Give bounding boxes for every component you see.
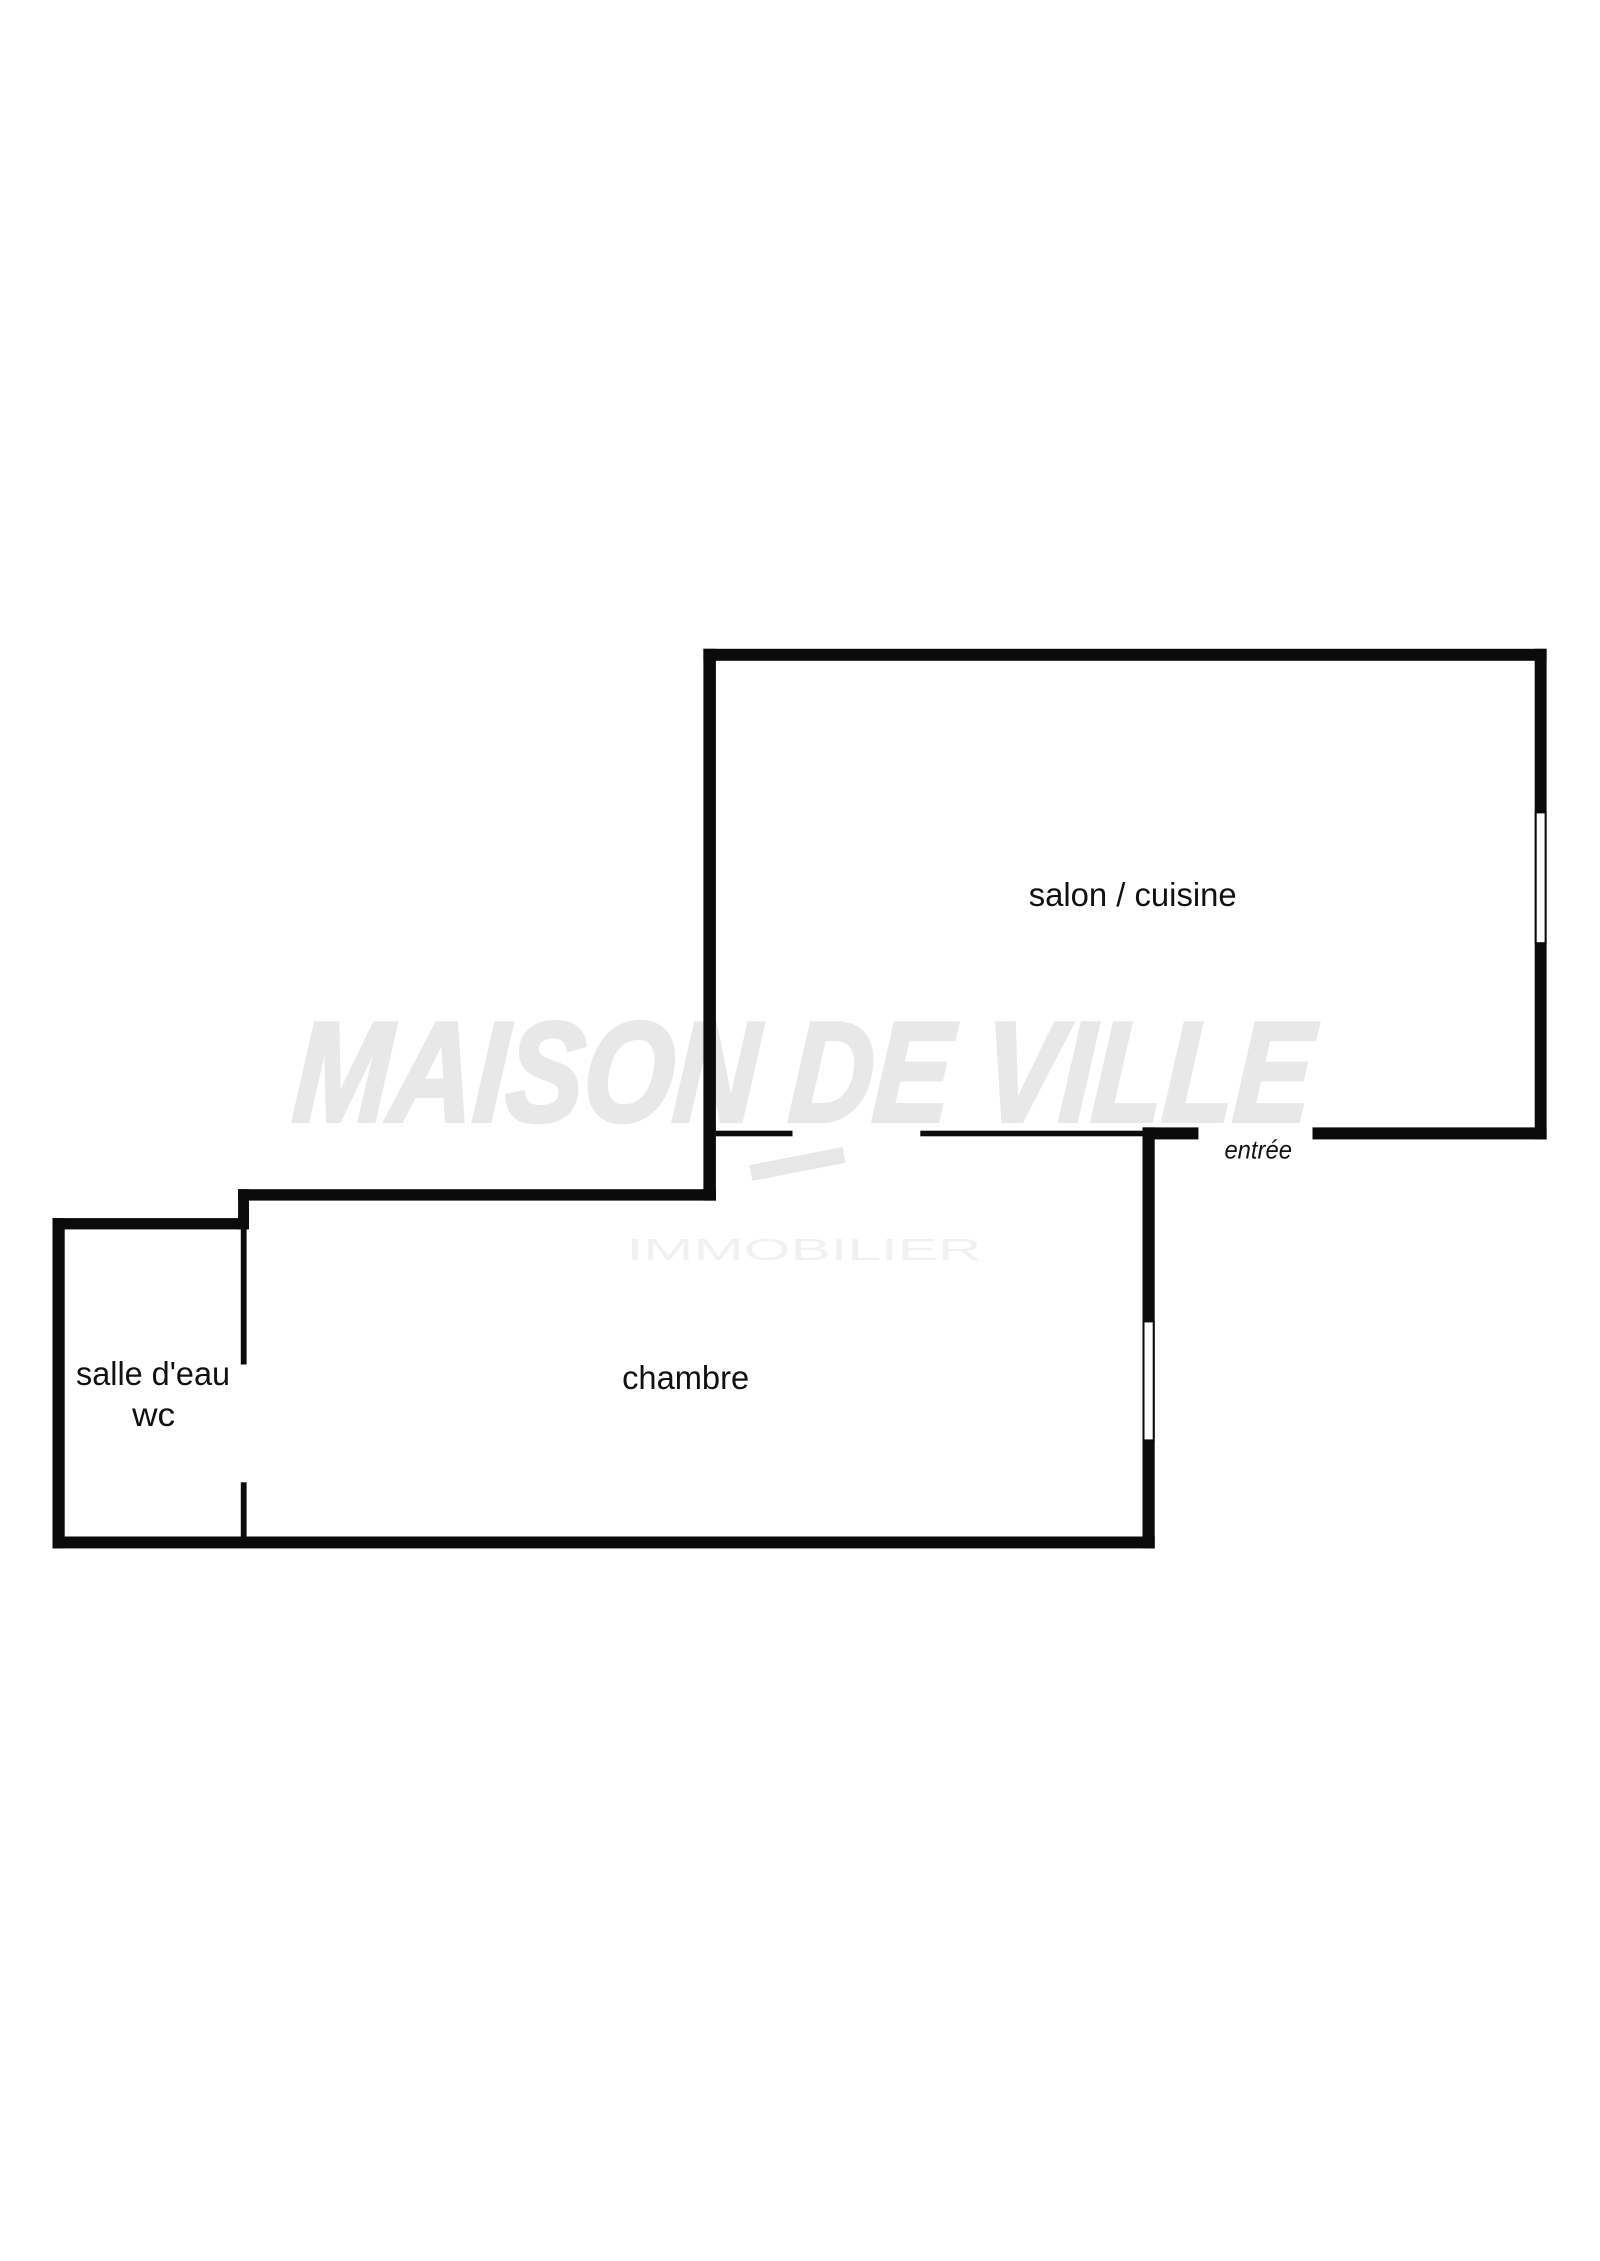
svg-text:IMMOBILIER: IMMOBILIER (627, 1232, 982, 1267)
svg-text:salle d'eau: salle d'eau (76, 1355, 230, 1392)
svg-text:wc: wc (131, 1396, 175, 1433)
svg-text:entrée: entrée (1224, 1135, 1292, 1165)
svg-text:salon / cuisine: salon / cuisine (1029, 876, 1237, 913)
svg-text:chambre: chambre (622, 1359, 749, 1396)
